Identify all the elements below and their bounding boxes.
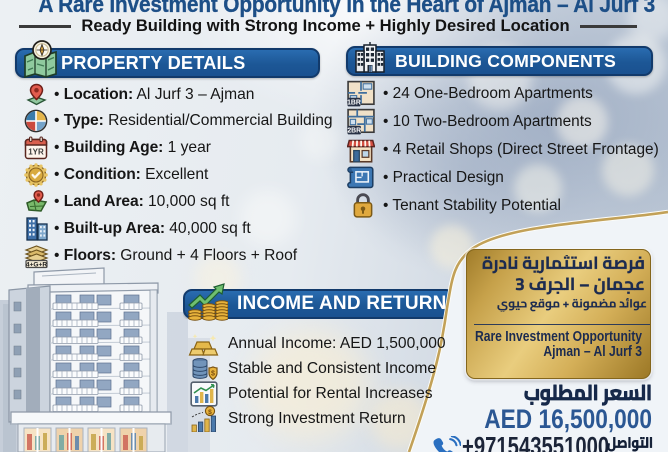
svg-text:$: $ [211,371,215,378]
svg-text:1YR: 1YR [28,148,44,157]
svg-text:2BR: 2BR [347,128,361,135]
svg-text:1BR: 1BR [347,100,361,107]
